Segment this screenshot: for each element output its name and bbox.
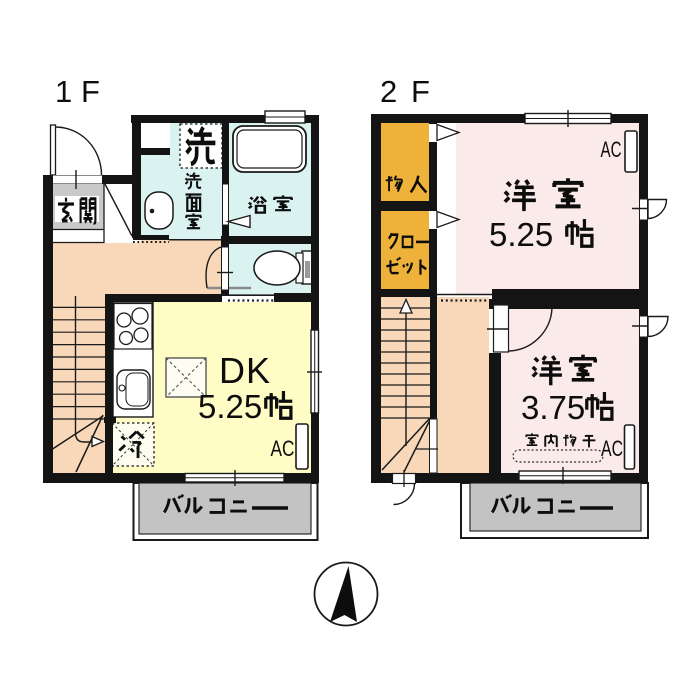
svg-text:5.25: 5.25 <box>198 388 262 425</box>
svg-text:DK: DK <box>219 350 271 391</box>
svg-text:5.25: 5.25 <box>489 216 553 253</box>
svg-text:1: 1 <box>55 74 72 109</box>
svg-text:2: 2 <box>380 74 397 109</box>
svg-text:F: F <box>81 74 100 109</box>
svg-text:AC: AC <box>271 436 295 461</box>
svg-text:AC: AC <box>601 137 622 162</box>
svg-text:3.75: 3.75 <box>521 389 585 426</box>
svg-text:AC: AC <box>601 436 623 461</box>
svg-text:F: F <box>411 74 430 109</box>
